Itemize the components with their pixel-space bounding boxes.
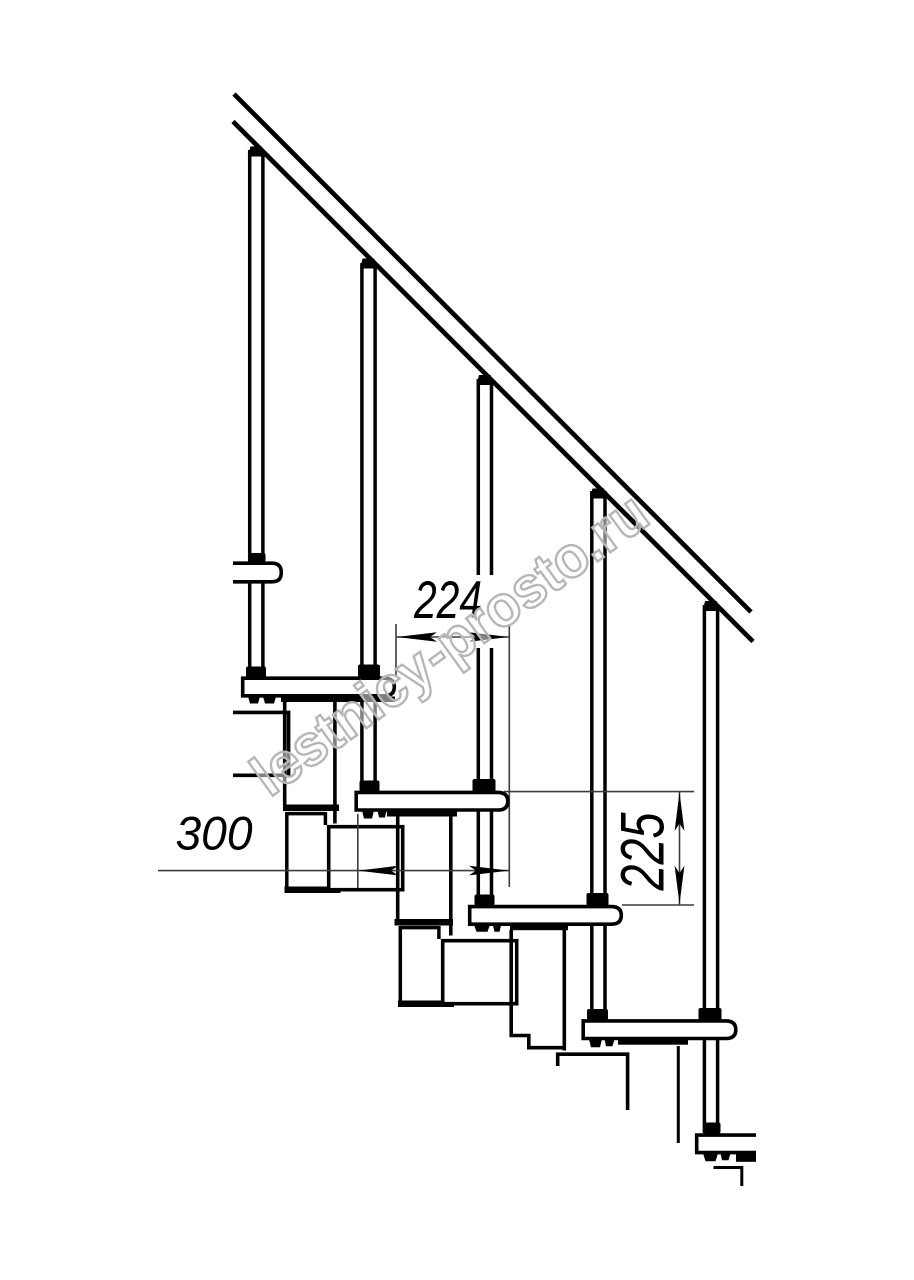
svg-text:225: 225 xyxy=(609,812,677,892)
svg-text:300: 300 xyxy=(176,807,253,860)
svg-text:lestnicy-prosto.ru: lestnicy-prosto.ru xyxy=(239,480,660,809)
